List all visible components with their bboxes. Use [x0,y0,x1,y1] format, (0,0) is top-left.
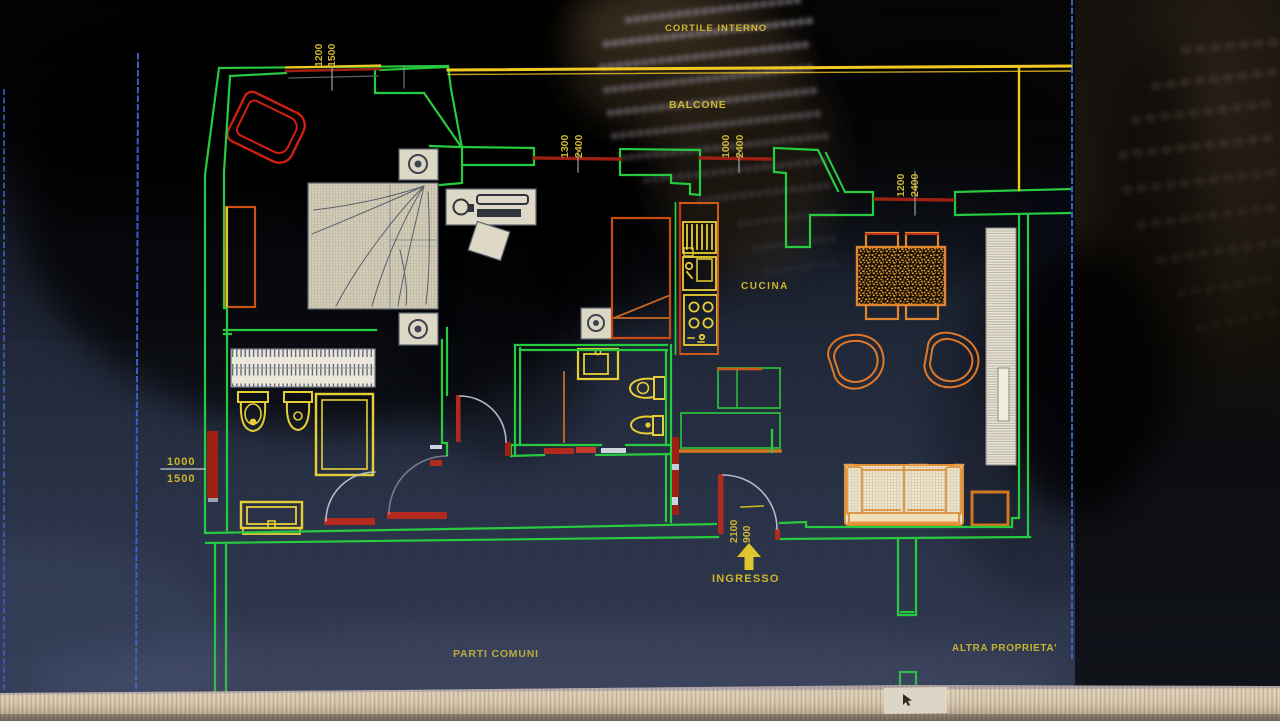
svg-text:1200: 1200 [895,173,907,197]
svg-text:CORTILE INTERNO: CORTILE INTERNO [665,23,767,34]
svg-text:1000: 1000 [167,456,195,468]
svg-text:BALCONE: BALCONE [669,99,727,111]
svg-text:2400: 2400 [909,173,921,197]
svg-text:2400: 2400 [734,134,746,158]
svg-text:1200: 1200 [313,43,325,67]
svg-text:900: 900 [741,525,753,543]
svg-text:1500: 1500 [167,473,195,485]
svg-text:1500: 1500 [326,43,338,67]
svg-text:1000: 1000 [720,134,732,158]
svg-text:2400: 2400 [573,134,585,158]
svg-text:INGRESSO: INGRESSO [712,573,780,585]
svg-text:CUCINA: CUCINA [741,281,789,292]
svg-text:1300: 1300 [559,134,571,158]
svg-text:2100: 2100 [728,519,740,543]
